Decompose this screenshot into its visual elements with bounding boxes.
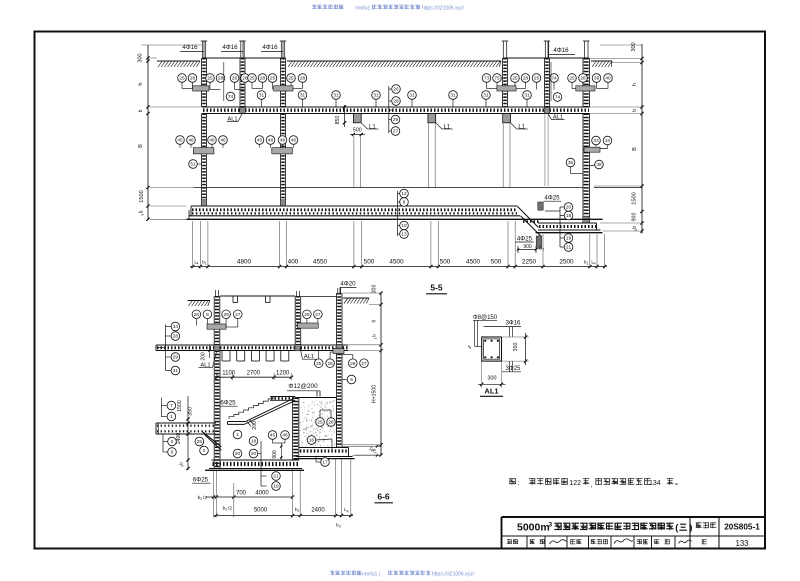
svg-text:31: 31 (524, 93, 530, 98)
svg-text:21: 21 (273, 474, 279, 479)
svg-text:9: 9 (403, 200, 406, 205)
svg-text:18: 18 (566, 213, 572, 218)
svg-text:74: 74 (555, 95, 561, 100)
svg-text:b: b (632, 109, 638, 112)
svg-text:28: 28 (173, 334, 179, 339)
svg-text:25: 25 (288, 76, 294, 81)
svg-text:1: 1 (236, 432, 239, 437)
svg-text:3: 3 (549, 521, 553, 528)
svg-text:B: B (632, 147, 638, 151)
svg-text:500: 500 (364, 258, 375, 265)
svg-text:28: 28 (242, 76, 248, 81)
svg-text:b: b (632, 226, 638, 229)
svg-text:28: 28 (393, 99, 399, 104)
svg-text:134: 134 (649, 480, 661, 487)
svg-text:/2: /2 (203, 495, 207, 501)
svg-text:46: 46 (291, 138, 297, 143)
svg-text:28: 28 (300, 76, 306, 81)
svg-text:16: 16 (309, 438, 315, 443)
svg-text:6: 6 (171, 450, 174, 455)
svg-text:b: b (179, 462, 185, 465)
svg-text:29: 29 (173, 355, 179, 360)
svg-text:400: 400 (288, 258, 299, 265)
svg-text:48: 48 (282, 433, 288, 438)
svg-text:73: 73 (484, 76, 490, 81)
svg-text:b: b (372, 448, 378, 451)
svg-text:2500: 2500 (559, 258, 574, 265)
svg-text:4550: 4550 (313, 258, 328, 265)
svg-text:300: 300 (138, 53, 144, 62)
svg-text:H+1500: H+1500 (372, 385, 378, 403)
svg-text:L1: L1 (369, 124, 376, 130)
svg-text:h: h (372, 319, 378, 322)
svg-text:28: 28 (194, 312, 200, 317)
svg-text:34: 34 (605, 138, 611, 143)
svg-text:https://321006.xyz/: https://321006.xyz/ (432, 572, 475, 578)
svg-text:8: 8 (206, 312, 209, 317)
svg-text:31: 31 (409, 93, 415, 98)
svg-text:25: 25 (569, 76, 575, 81)
svg-text:28: 28 (523, 76, 529, 81)
svg-text:700: 700 (236, 490, 247, 496)
svg-text:31: 31 (450, 93, 456, 98)
svg-text:27: 27 (361, 361, 367, 366)
svg-text:6Φ25: 6Φ25 (220, 399, 236, 406)
svg-text:b: b (372, 334, 378, 337)
svg-text:5000: 5000 (254, 508, 268, 514)
svg-text:https://321006.xyz/: https://321006.xyz/ (422, 6, 465, 12)
svg-text:20: 20 (566, 205, 572, 210)
svg-text:45: 45 (270, 433, 276, 438)
svg-text:28: 28 (218, 76, 224, 81)
svg-text:33: 33 (593, 138, 599, 143)
svg-text:3: 3 (339, 525, 341, 529)
svg-text:3: 3 (374, 452, 378, 454)
svg-text:h: h (138, 82, 144, 85)
svg-text:25: 25 (207, 76, 213, 81)
svg-text:/2: /2 (228, 505, 232, 511)
svg-text:27: 27 (315, 312, 321, 317)
svg-text:4: 4 (347, 509, 349, 513)
svg-text:300: 300 (488, 376, 497, 382)
svg-text:2400: 2400 (311, 508, 325, 514)
svg-text:28: 28 (260, 76, 266, 81)
svg-text:28: 28 (580, 76, 586, 81)
svg-text:20S805-1: 20S805-1 (724, 523, 760, 532)
svg-text:b: b (139, 210, 145, 213)
svg-text:1100: 1100 (222, 371, 236, 377)
svg-text:Φ8@150: Φ8@150 (473, 315, 498, 321)
svg-text:500: 500 (353, 128, 362, 134)
svg-text:nnnfu1 |: nnnfu1 | (362, 572, 380, 578)
svg-text:13: 13 (401, 232, 407, 237)
svg-text:6: 6 (350, 377, 353, 382)
svg-text:27: 27 (393, 129, 399, 134)
svg-text:48: 48 (188, 138, 194, 143)
svg-text:46: 46 (220, 138, 226, 143)
svg-text:3Φ16: 3Φ16 (506, 320, 521, 326)
svg-text:L1: L1 (444, 124, 451, 130)
svg-text:4500: 4500 (389, 258, 404, 265)
svg-text:6Φ25: 6Φ25 (193, 476, 209, 483)
svg-text:4Φ16: 4Φ16 (553, 47, 569, 54)
svg-text:10: 10 (401, 223, 407, 228)
svg-text:75: 75 (494, 76, 500, 81)
svg-text:31: 31 (333, 93, 339, 98)
svg-text:25: 25 (316, 361, 322, 366)
svg-text:h: h (632, 83, 638, 86)
svg-text:1500: 1500 (632, 192, 638, 204)
svg-text:49: 49 (209, 138, 215, 143)
svg-text:31: 31 (259, 93, 265, 98)
svg-text:133: 133 (735, 539, 748, 548)
svg-text:122: 122 (569, 480, 581, 487)
svg-text:900: 900 (272, 450, 278, 459)
svg-text:6-6: 6-6 (377, 492, 390, 502)
svg-text:4Φ20: 4Φ20 (340, 281, 356, 288)
svg-text:17: 17 (322, 460, 328, 465)
svg-text:900: 900 (632, 213, 638, 222)
svg-text:28: 28 (327, 361, 333, 366)
svg-text:4Φ16: 4Φ16 (262, 44, 278, 51)
svg-text:25: 25 (249, 76, 255, 81)
svg-text:2250: 2250 (522, 258, 537, 265)
svg-text:7: 7 (170, 403, 173, 408)
svg-text:25: 25 (534, 76, 540, 81)
svg-text:74: 74 (228, 94, 234, 99)
svg-text:500: 500 (491, 258, 502, 265)
svg-text:29: 29 (223, 312, 229, 317)
svg-text:200: 200 (252, 421, 258, 430)
svg-text:20: 20 (235, 451, 241, 456)
svg-text:1500: 1500 (139, 190, 145, 202)
svg-text:300: 300 (631, 42, 637, 51)
svg-text:31: 31 (483, 93, 489, 98)
svg-text:4000: 4000 (255, 490, 269, 496)
svg-text:21: 21 (566, 245, 572, 250)
svg-text:1: 1 (374, 337, 378, 339)
svg-text:300: 300 (372, 285, 378, 294)
svg-text:850: 850 (335, 116, 341, 125)
svg-text:4Φ25: 4Φ25 (517, 235, 533, 242)
svg-text:25: 25 (270, 76, 276, 81)
svg-text:39: 39 (594, 76, 600, 81)
svg-text:4: 4 (197, 262, 199, 266)
svg-text:45: 45 (177, 138, 183, 143)
svg-text:2700: 2700 (247, 371, 261, 377)
svg-text:AL1: AL1 (484, 387, 498, 396)
svg-text:B: B (138, 144, 144, 148)
svg-text:2: 2 (203, 448, 206, 453)
svg-text:900: 900 (523, 244, 532, 250)
svg-text:51: 51 (190, 162, 196, 167)
svg-text:3: 3 (634, 229, 638, 231)
svg-text:nnnfu1 |: nnnfu1 | (355, 6, 373, 12)
svg-text:200: 200 (201, 352, 207, 361)
svg-text:,: , (591, 482, 593, 489)
svg-text:350: 350 (188, 407, 194, 416)
svg-text:74: 74 (551, 76, 557, 81)
svg-text:500: 500 (440, 258, 451, 265)
svg-text:4800: 4800 (237, 258, 252, 265)
svg-text:4500: 4500 (466, 258, 481, 265)
svg-text:26: 26 (393, 87, 399, 92)
svg-text:26: 26 (232, 76, 238, 81)
svg-text:3Φ25: 3Φ25 (506, 366, 521, 372)
svg-text:b: b (138, 109, 144, 112)
svg-text:31: 31 (373, 93, 379, 98)
svg-text:2: 2 (298, 509, 300, 513)
svg-text:27: 27 (235, 312, 241, 317)
svg-text:12: 12 (401, 191, 407, 196)
svg-text:4Φ25: 4Φ25 (544, 195, 560, 202)
svg-text:5000m: 5000m (517, 521, 550, 533)
svg-text:28: 28 (190, 76, 196, 81)
svg-text:L1: L1 (518, 124, 525, 130)
svg-text::: : (518, 480, 520, 487)
svg-text:19: 19 (273, 484, 279, 489)
svg-text:49: 49 (280, 138, 286, 143)
svg-text:4Φ16: 4Φ16 (222, 44, 238, 51)
svg-text:18: 18 (251, 439, 257, 444)
svg-text:31: 31 (173, 368, 179, 373)
svg-text:20: 20 (251, 451, 257, 456)
svg-text:25: 25 (179, 76, 185, 81)
svg-text:45: 45 (257, 138, 263, 143)
svg-text:31: 31 (300, 93, 306, 98)
svg-text:25: 25 (512, 76, 518, 81)
svg-text:1: 1 (205, 262, 207, 266)
svg-text:19: 19 (566, 236, 572, 241)
svg-text:350: 350 (513, 343, 519, 352)
svg-text:3: 3 (141, 214, 145, 216)
svg-text:29: 29 (304, 312, 310, 317)
svg-text:40: 40 (605, 76, 611, 81)
svg-text:3: 3 (181, 465, 185, 467)
svg-text:34: 34 (173, 324, 179, 329)
svg-text:2: 2 (171, 439, 174, 444)
svg-text:Φ12@200: Φ12@200 (288, 383, 318, 390)
svg-text:1200: 1200 (276, 371, 290, 377)
svg-text:48: 48 (268, 138, 274, 143)
svg-text:26: 26 (350, 361, 356, 366)
svg-text:1: 1 (170, 414, 173, 419)
svg-text:4: 4 (594, 262, 596, 266)
svg-text:29: 29 (393, 117, 399, 122)
svg-text:28: 28 (328, 420, 334, 425)
svg-text:35: 35 (568, 160, 574, 165)
svg-text:1500: 1500 (177, 400, 183, 412)
svg-text:38: 38 (596, 162, 602, 167)
svg-text:): ) (689, 522, 692, 533)
svg-text:25: 25 (317, 420, 323, 425)
svg-text:25: 25 (197, 439, 203, 444)
svg-text:1: 1 (587, 261, 589, 265)
svg-text:5-5: 5-5 (430, 283, 443, 293)
